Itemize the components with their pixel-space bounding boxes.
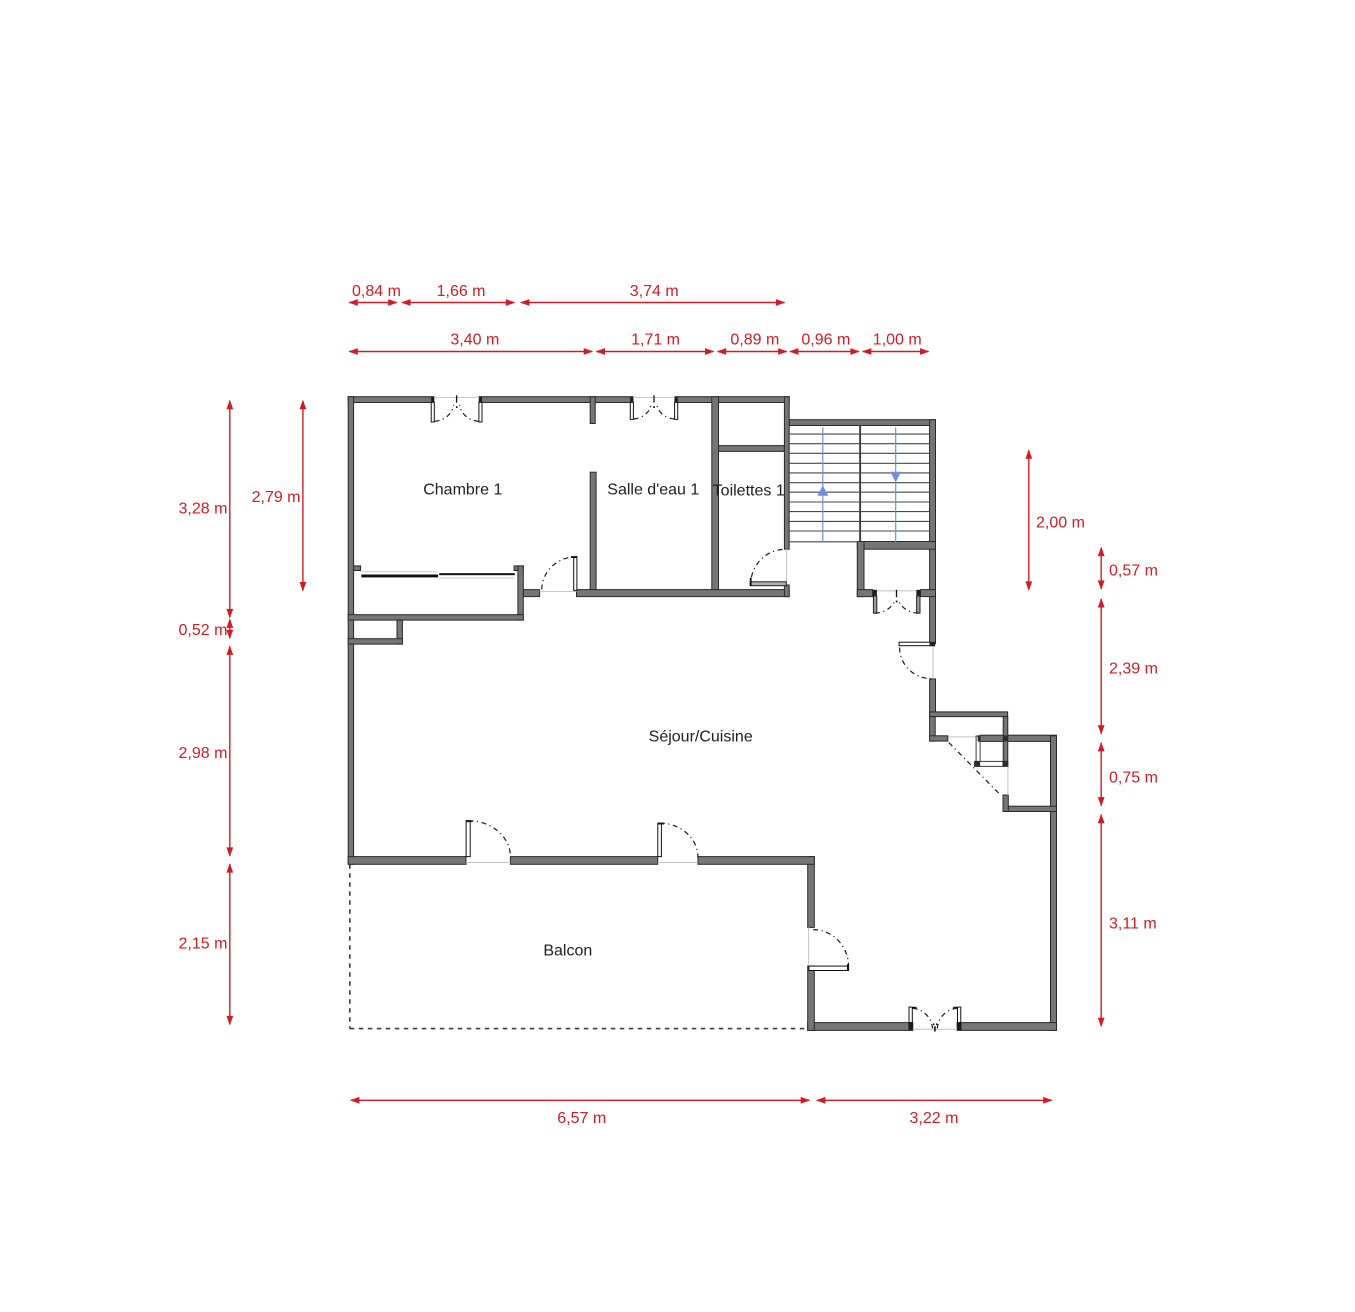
svg-text:Chambre 1: Chambre 1 bbox=[423, 482, 502, 499]
svg-text:2,15 m: 2,15 m bbox=[179, 935, 228, 952]
svg-text:1,66 m: 1,66 m bbox=[437, 283, 486, 300]
svg-text:Salle d'eau 1: Salle d'eau 1 bbox=[607, 482, 699, 499]
svg-text:2,00 m: 2,00 m bbox=[1036, 515, 1085, 532]
svg-text:3,28 m: 3,28 m bbox=[179, 501, 228, 518]
svg-text:2,79 m: 2,79 m bbox=[252, 489, 301, 506]
svg-text:Balcon: Balcon bbox=[543, 943, 592, 960]
svg-text:6,57 m: 6,57 m bbox=[557, 1110, 606, 1127]
svg-text:0,75 m: 0,75 m bbox=[1109, 769, 1158, 786]
svg-text:0,57 m: 0,57 m bbox=[1109, 563, 1158, 580]
svg-text:1,00 m: 1,00 m bbox=[873, 332, 922, 349]
svg-text:3,22 m: 3,22 m bbox=[910, 1110, 959, 1127]
svg-text:0,96 m: 0,96 m bbox=[801, 332, 850, 349]
svg-text:3,74 m: 3,74 m bbox=[630, 283, 679, 300]
svg-text:0,52 m: 0,52 m bbox=[179, 622, 228, 639]
svg-text:3,11 m: 3,11 m bbox=[1109, 915, 1157, 932]
svg-text:Séjour/Cuisine: Séjour/Cuisine bbox=[649, 729, 753, 746]
svg-text:0,84 m: 0,84 m bbox=[352, 283, 401, 300]
svg-text:3,40 m: 3,40 m bbox=[450, 332, 499, 349]
svg-text:Toilettes 1: Toilettes 1 bbox=[713, 482, 785, 499]
svg-text:2,39 m: 2,39 m bbox=[1109, 661, 1158, 678]
svg-text:0,89 m: 0,89 m bbox=[730, 332, 779, 349]
svg-text:2,98 m: 2,98 m bbox=[179, 745, 228, 762]
svg-text:1,71 m: 1,71 m bbox=[631, 332, 680, 349]
